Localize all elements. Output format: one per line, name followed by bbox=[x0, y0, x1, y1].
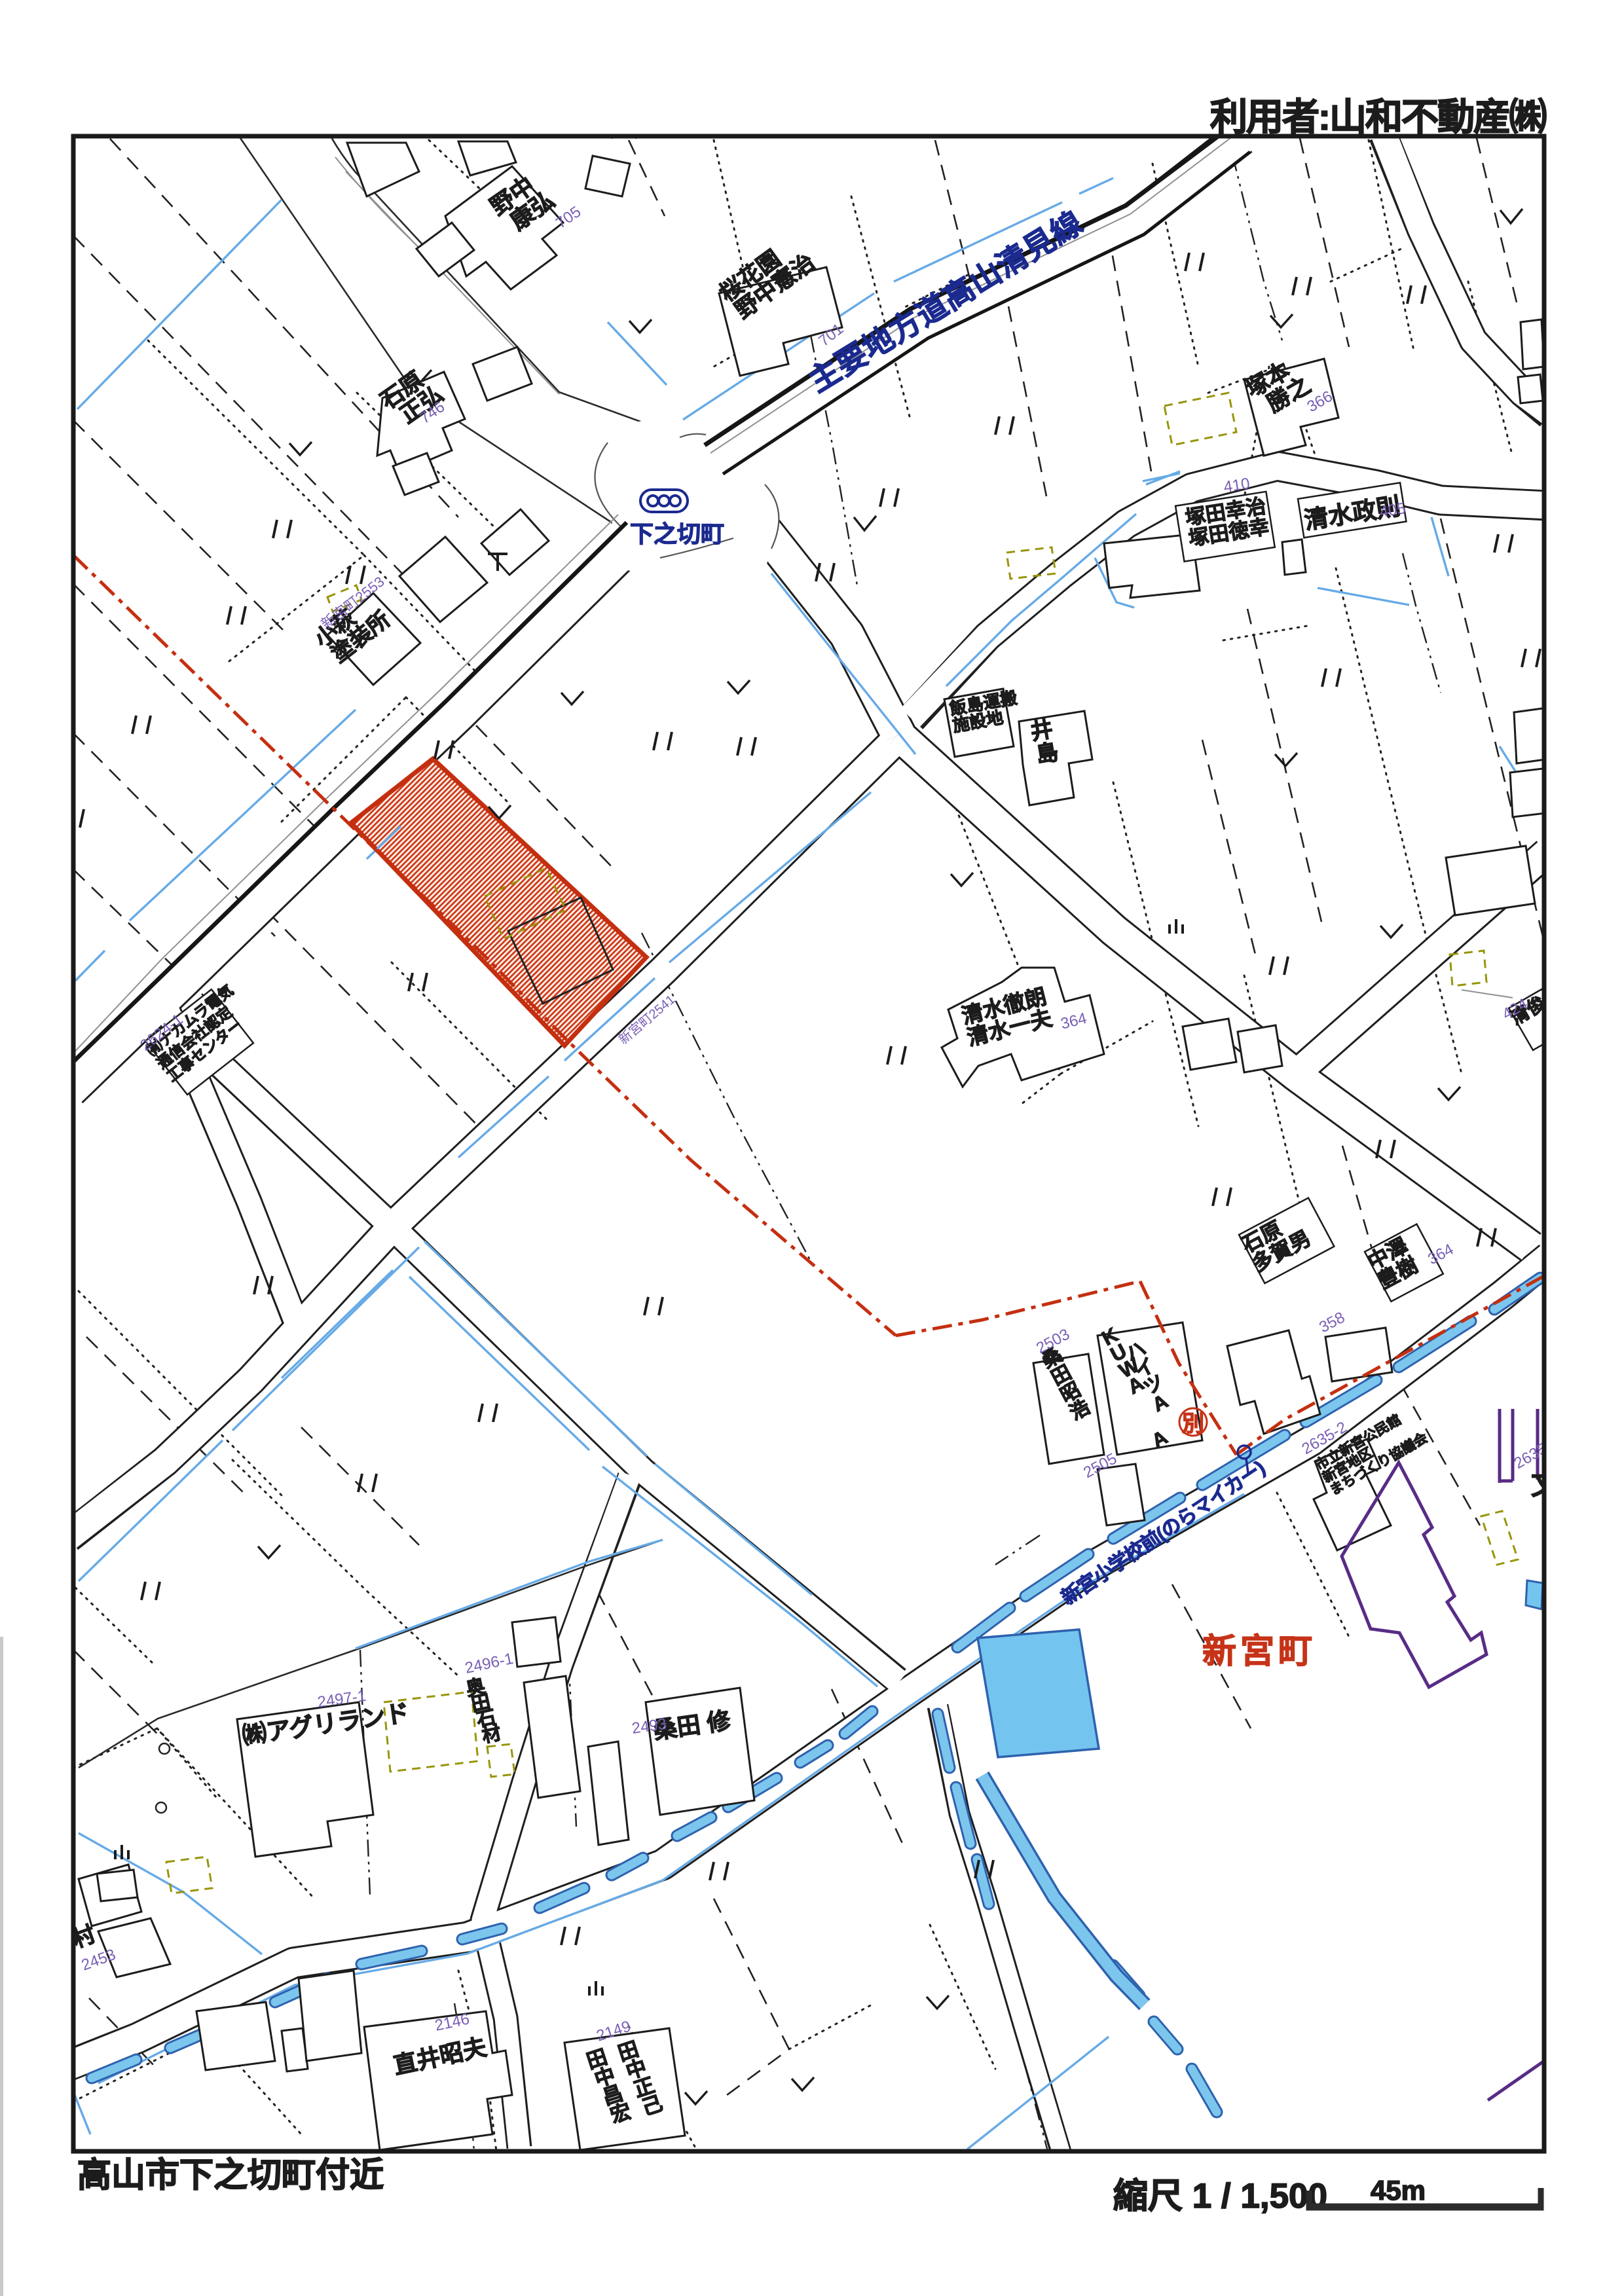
svg-text:縮尺 1 / 1,500: 縮尺 1 / 1,500 bbox=[1113, 2177, 1327, 2215]
svg-text:別: 別 bbox=[1182, 1412, 1204, 1436]
svg-text:45m: 45m bbox=[1371, 2175, 1426, 2206]
svg-text:新宮町: 新宮町 bbox=[1202, 1633, 1316, 1671]
svg-text:高山市下之切町付近: 高山市下之切町付近 bbox=[77, 2157, 384, 2195]
svg-text:利用者:山和不動産㈱: 利用者:山和不動産㈱ bbox=[1210, 96, 1547, 138]
svg-text:下之切町: 下之切町 bbox=[630, 520, 724, 547]
